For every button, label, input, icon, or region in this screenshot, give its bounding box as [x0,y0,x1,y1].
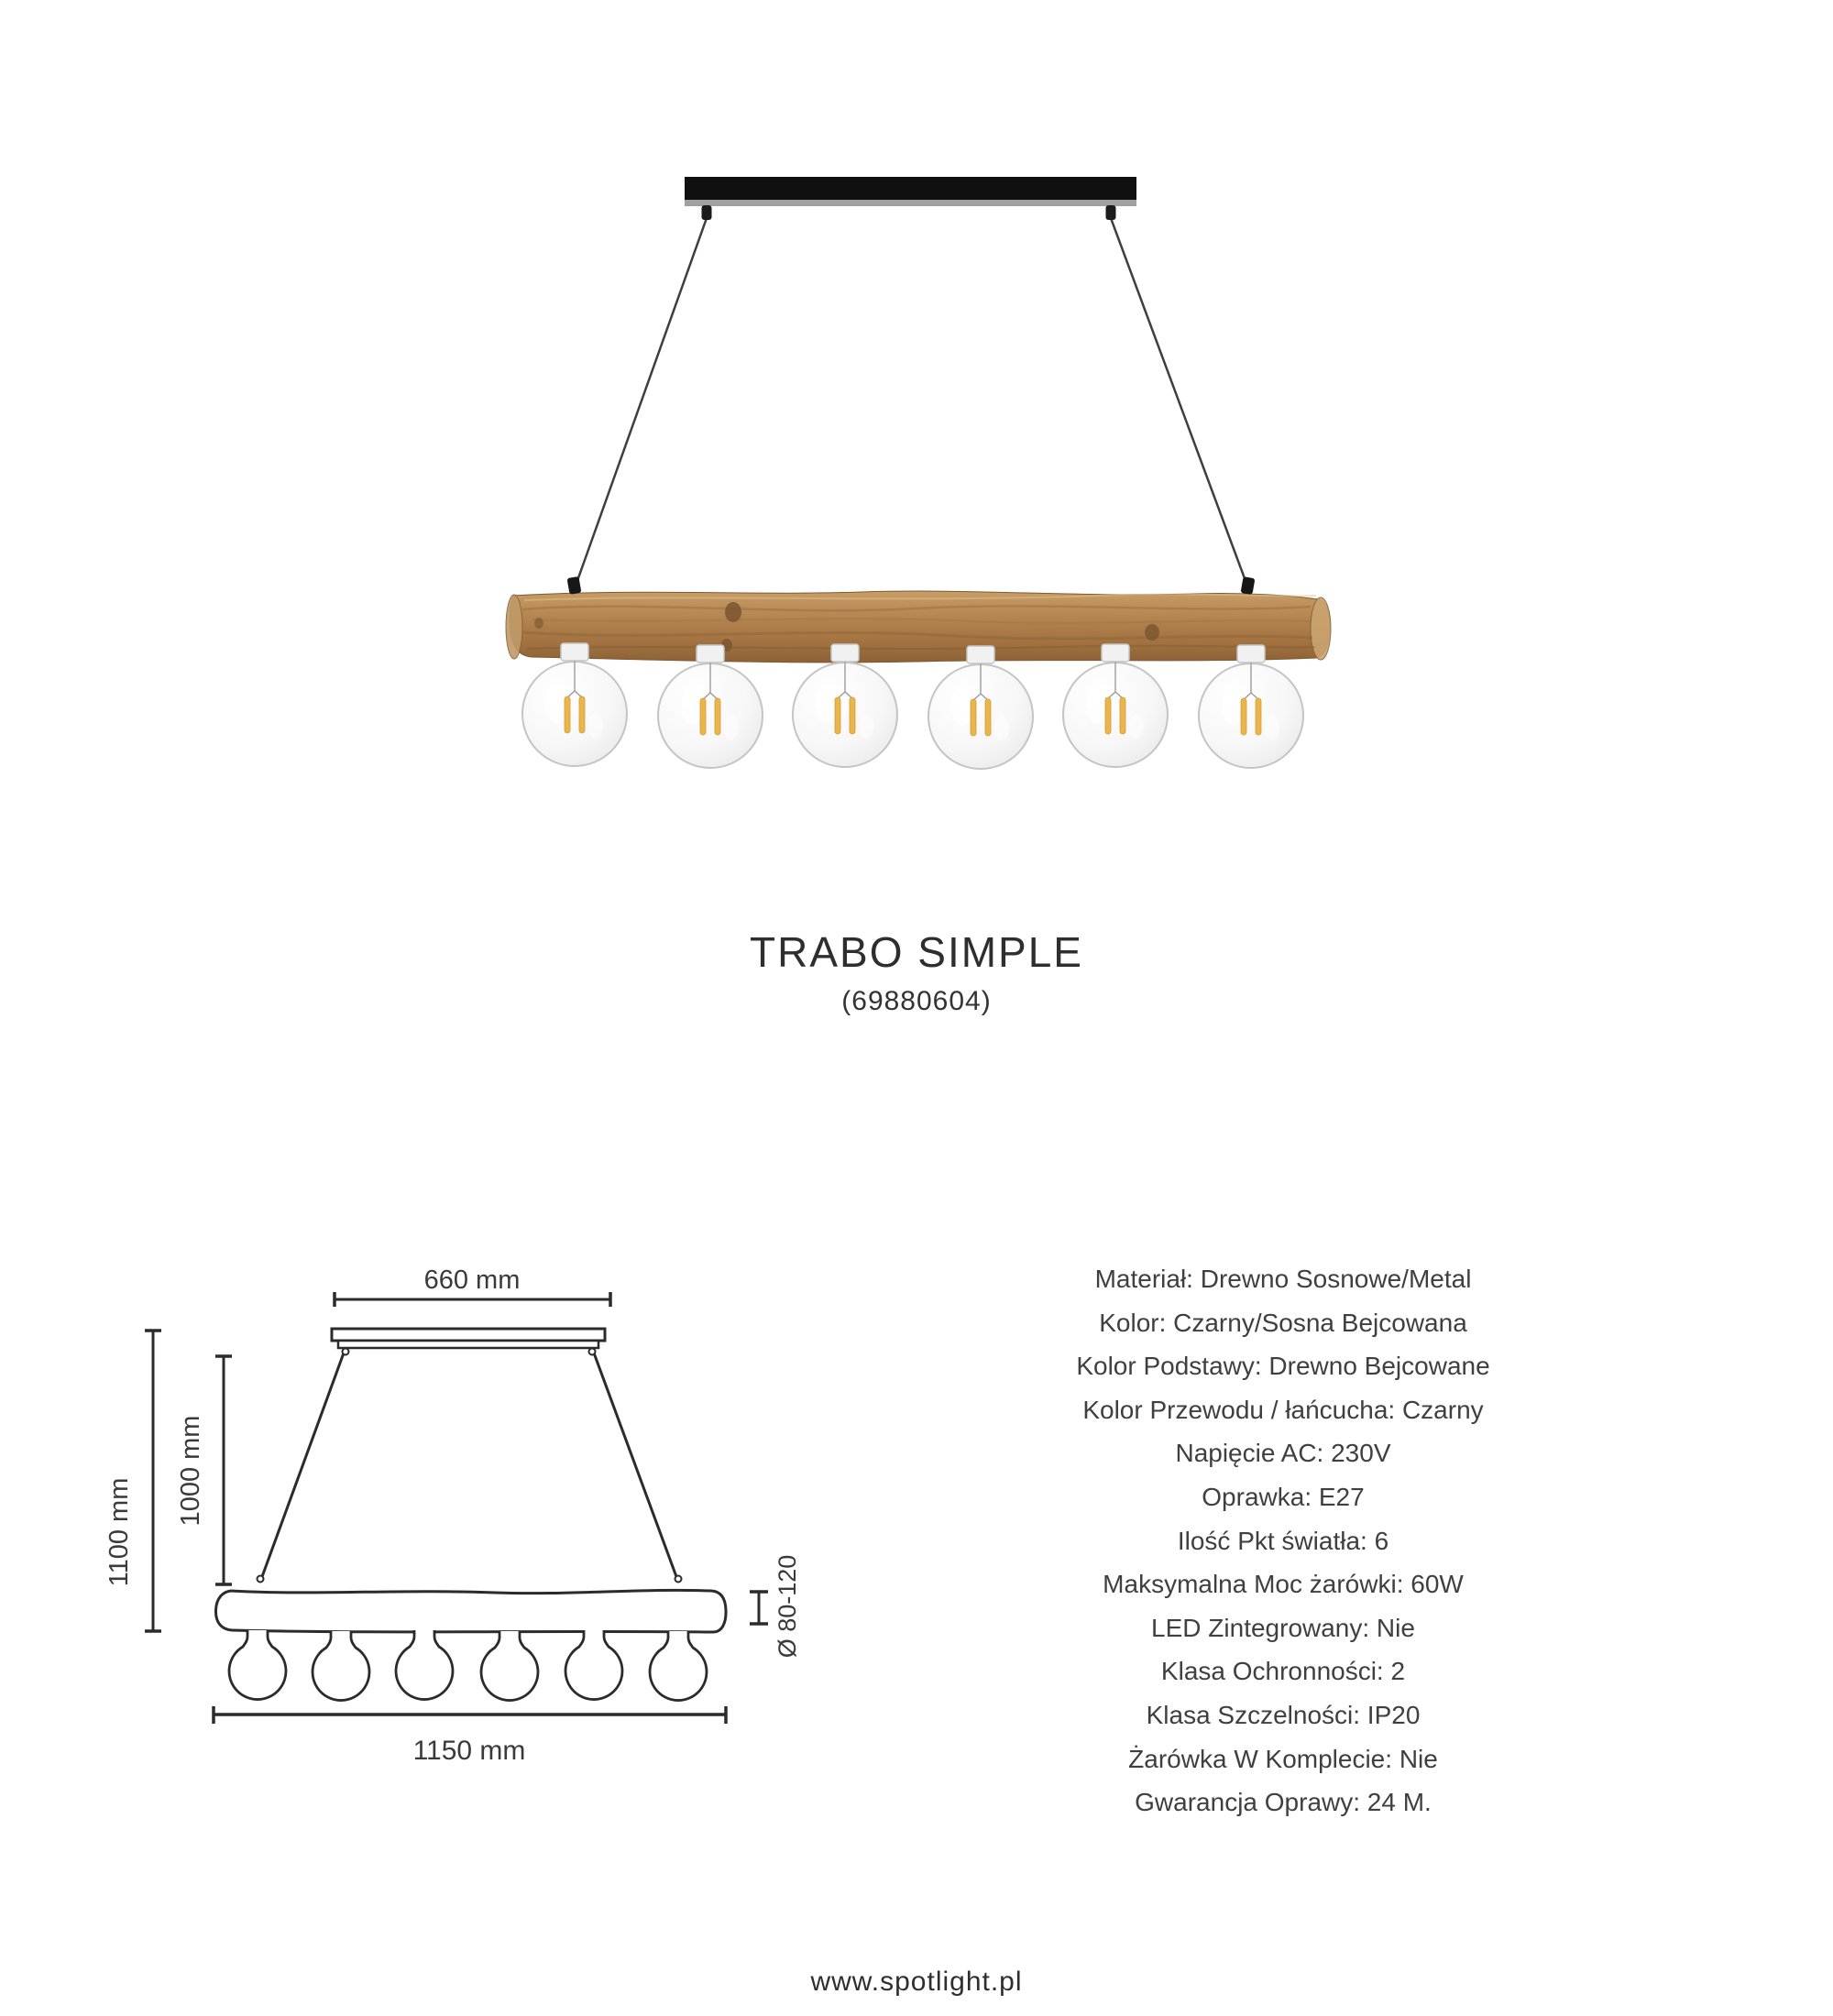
bulb [1063,644,1168,767]
footer-url: www.spotlight.pl [0,1967,1833,1998]
spec-item-material: Materiał: Drewno Sosnowe/Metal [1049,1257,1517,1301]
drawing-bulb [650,1631,707,1701]
cable-grip-left [702,205,712,220]
cable-connector-right [1241,576,1256,595]
drawing-canopy [332,1329,605,1348]
spec-item-protection-class: Klasa Ochronności: 2 [1049,1649,1517,1693]
product-sheet: TRABO SIMPLE (69880604) 660 mm [0,0,1833,2016]
dim-diameter [750,1592,768,1624]
drawing-bulb [229,1630,286,1700]
product-photo [0,0,1833,871]
suspension-cable-right [1111,218,1248,588]
bulb [522,643,627,766]
dimension-drawing: 660 mm 1100 mm 1000 mm [82,1255,852,1787]
wood-beam [506,591,1331,663]
dim-label-1150: 1150 mm [413,1736,526,1766]
wood-knot [725,602,741,622]
drawing-bulb [313,1631,369,1701]
drawing-bulb [396,1630,453,1700]
bulb [658,645,763,768]
spec-item-warranty: Gwarancja Oprawy: 24 M. [1049,1780,1517,1824]
bulb [1199,645,1303,768]
wood-knot [1145,624,1159,641]
spec-item-max-power: Maksymalna Moc żarówki: 60W [1049,1562,1517,1606]
spec-item-ip-class: Klasa Szczelności: IP20 [1049,1693,1517,1737]
ceiling-bar [685,177,1136,220]
spec-item-base-color: Kolor Podstawy: Drewno Bejcowane [1049,1344,1517,1388]
suspension-cable-left [575,218,707,588]
dim-height-total [145,1331,161,1631]
dim-label-diameter: Ø 80-120 [774,1555,801,1659]
drawing-cables [258,1348,682,1583]
product-code: (69880604) [0,986,1833,1017]
dim-height-cable [215,1356,232,1584]
spec-item-bulb-included: Żarówka W Komplecie: Nie [1049,1737,1517,1781]
dim-length [214,1706,726,1724]
spec-list: Materiał: Drewno Sosnowe/Metal Kolor: Cz… [1049,1257,1517,1824]
dim-label-1100: 1100 mm [104,1478,134,1587]
dim-label-1000: 1000 mm [176,1416,205,1527]
spec-item-socket: Oprawka: E27 [1049,1475,1517,1519]
drawing-bulb [481,1631,538,1701]
cable-connector-left [567,576,582,595]
drawing-bulb [565,1630,622,1700]
product-title: TRABO SIMPLE [0,927,1833,977]
spec-item-cable-color: Kolor Przewodu / łańcucha: Czarny [1049,1388,1517,1432]
dim-label-660: 660 mm [424,1265,521,1295]
wood-knot [534,618,543,629]
spec-item-color: Kolor: Czarny/Sosna Bejcowana [1049,1301,1517,1345]
spec-item-voltage: Napięcie AC: 230V [1049,1431,1517,1475]
spec-item-led-integrated: LED Zintegrowany: Nie [1049,1606,1517,1650]
spec-item-light-points: Ilość Pkt światła: 6 [1049,1519,1517,1563]
title-block: TRABO SIMPLE (69880604) [0,927,1833,1017]
bulb [928,646,1033,769]
cable-grip-right [1106,205,1116,220]
drawing-beam [215,1590,726,1632]
